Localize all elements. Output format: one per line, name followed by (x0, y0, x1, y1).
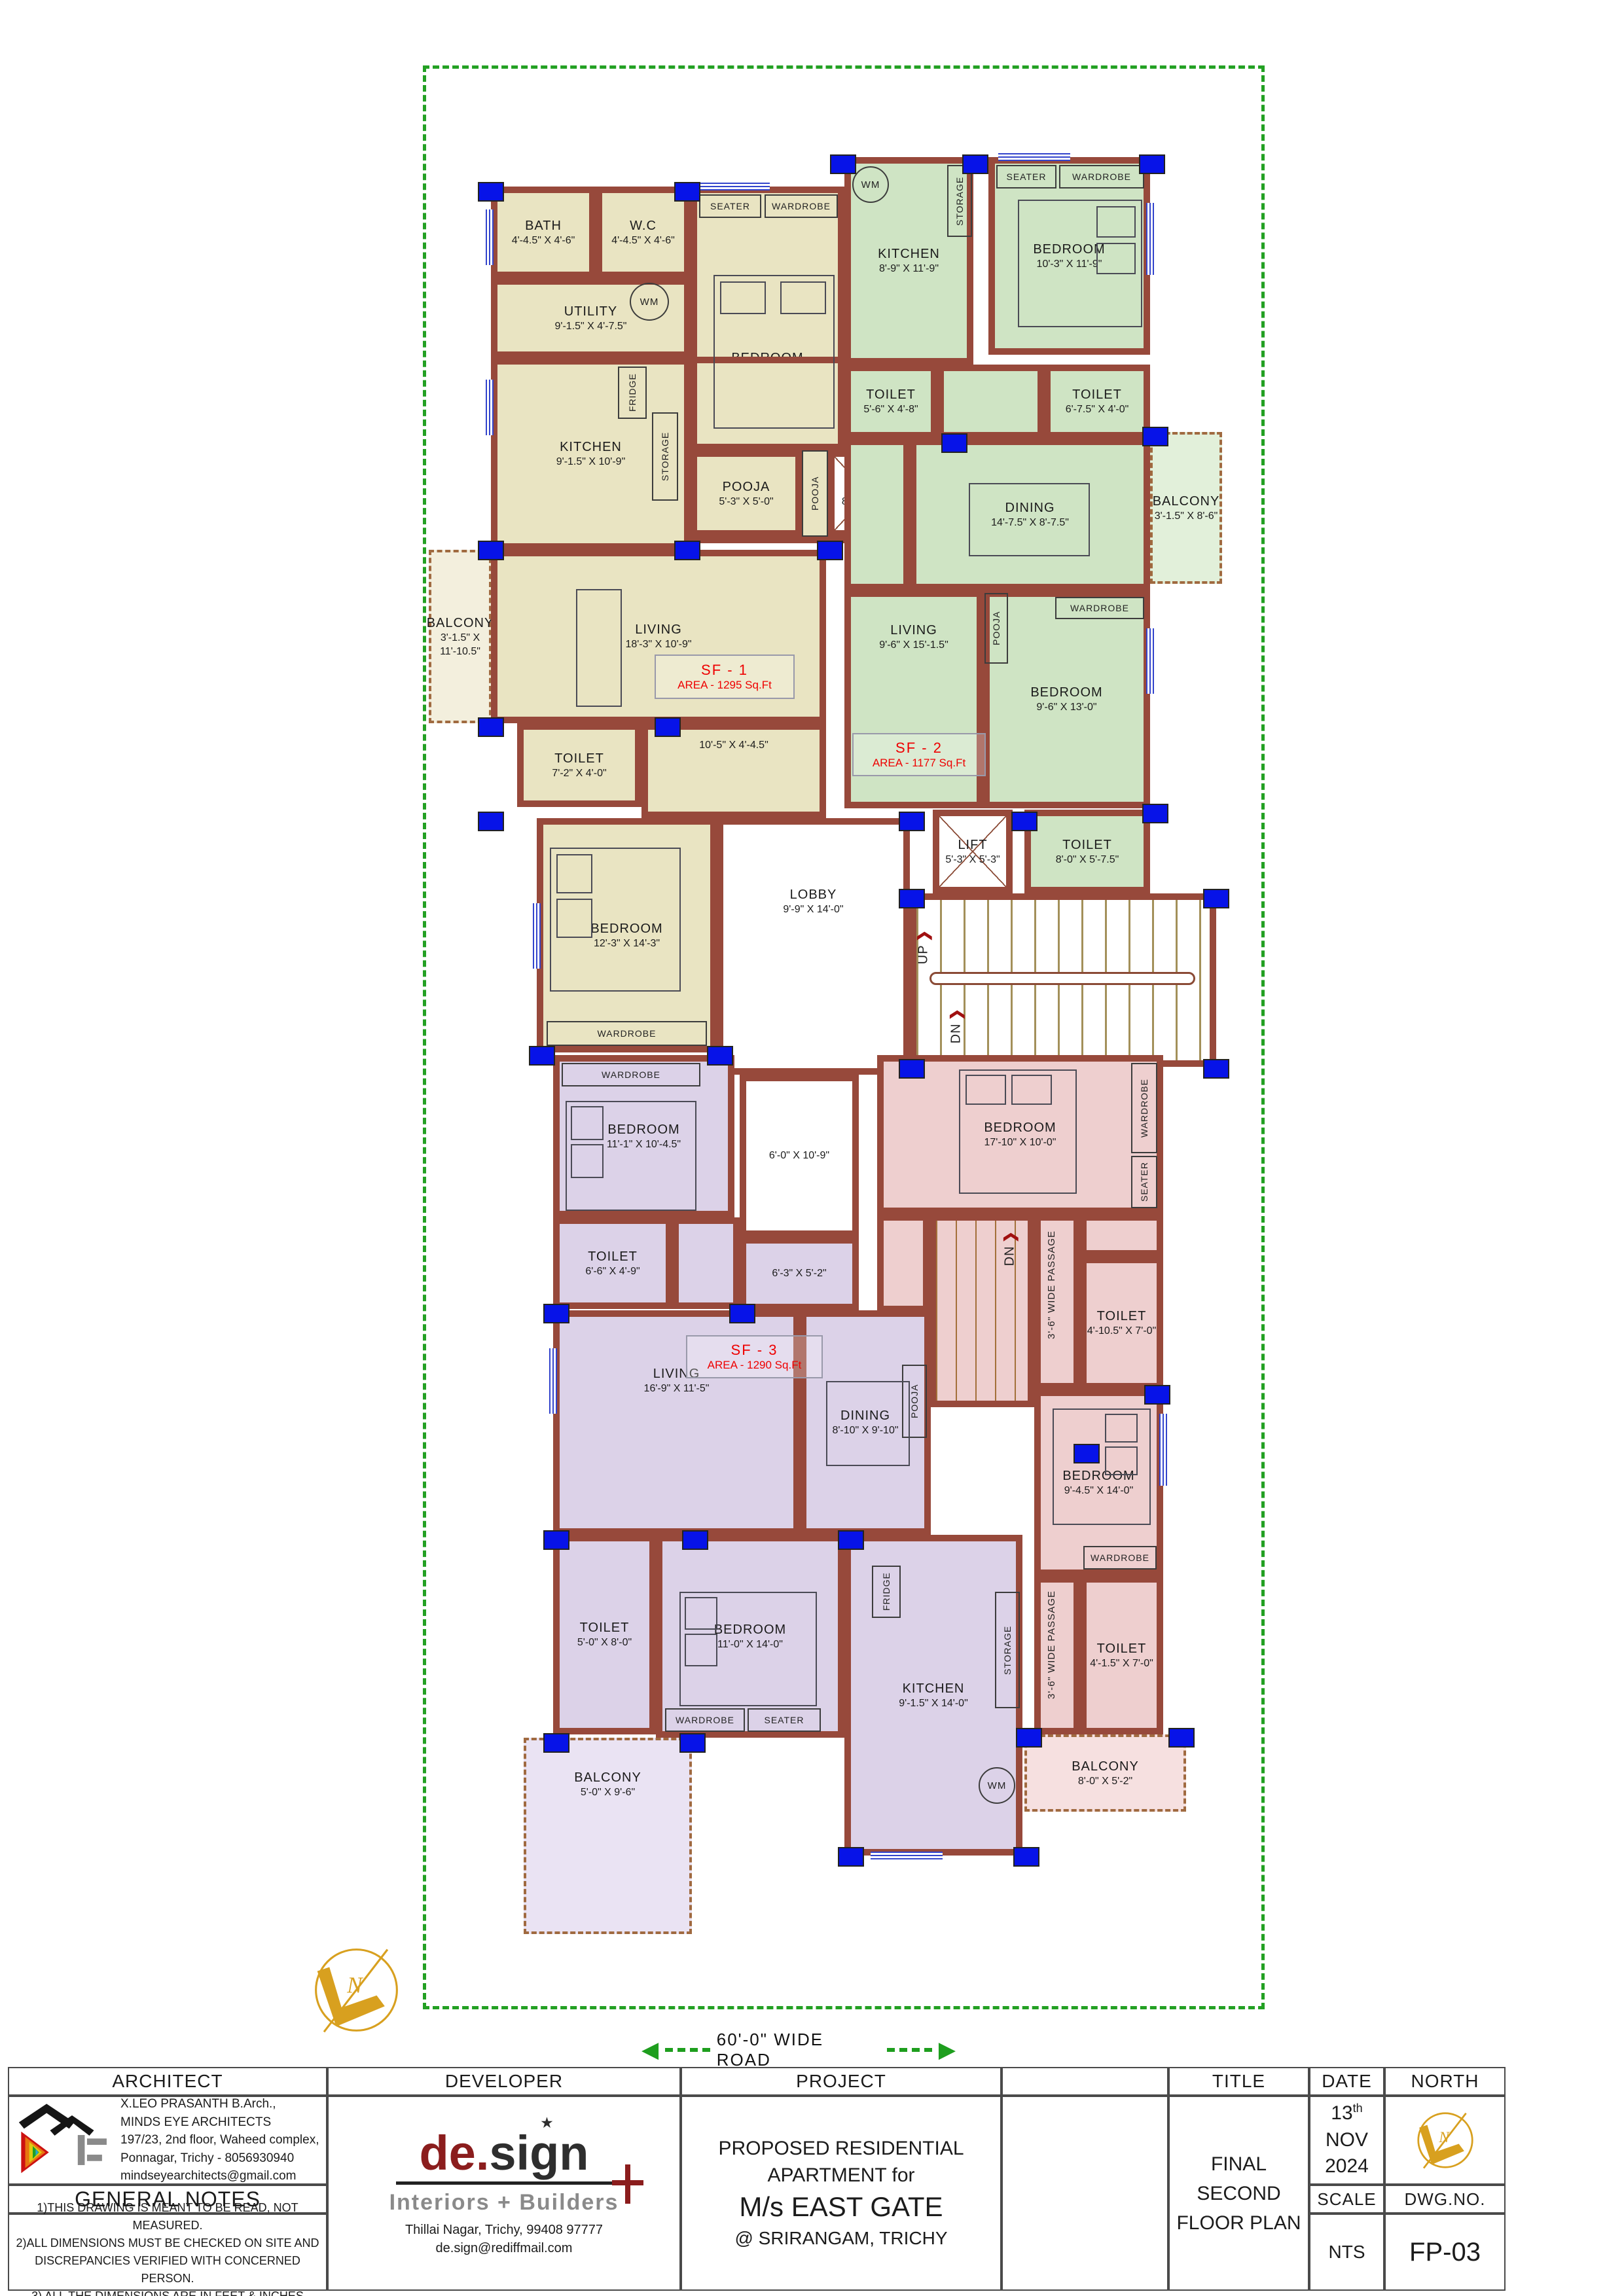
column-marker (941, 433, 967, 453)
column-marker (543, 1304, 569, 1323)
north-cell: N (1384, 2096, 1506, 2185)
storage-strip: STORAGE (652, 412, 678, 501)
window (1146, 203, 1154, 275)
circulation-sf4b (1080, 1214, 1163, 1257)
column-marker (1016, 1728, 1042, 1748)
bed (550, 848, 681, 992)
seater-strip: SEATER (699, 194, 761, 218)
seater-strip: SEATER (996, 165, 1056, 188)
column-marker (674, 541, 700, 560)
architect-info: X.LEO PRASANTH B.Arch., MINDS EYE ARCHIT… (8, 2096, 327, 2185)
column-marker (1139, 154, 1165, 174)
room-balcony-sf1: BALCONY 3'-1.5" X 11'-10.5" (429, 550, 492, 723)
stair-arrow-icon: ❯ (1001, 1230, 1019, 1243)
unit-label-sf3: SF - 3 AREA - 1290 Sq.Ft (686, 1335, 823, 1378)
circulation-sf3 (672, 1217, 740, 1309)
bed (713, 275, 835, 429)
road-label-group: ◀ 60'-0" WIDE ROAD ▶ (641, 2036, 956, 2064)
pooja-strip: POOJA (984, 593, 1008, 664)
room-toilet1-sf2: TOILET 5'-6" X 4'-8" (844, 365, 937, 439)
pooja-strip: POOJA (802, 450, 828, 537)
stairwell-sf4 (929, 1214, 1034, 1407)
passage1-sf4 (1034, 1214, 1080, 1390)
road-label: 60'-0" WIDE ROAD (717, 2030, 881, 2070)
column-marker (529, 1046, 555, 1066)
room-toilet3-sf2: TOILET 8'-0" X 5'-7.5" (1024, 810, 1150, 893)
seater-strip: SEATER (748, 1708, 821, 1732)
room-toilet2-sf2: TOILET 6'-7.5" X 4'-0" (1044, 365, 1150, 439)
dining-table (969, 483, 1090, 556)
column-marker (1203, 889, 1229, 908)
developer-address: Thillai Nagar, Trichy, 99408 97777 de.si… (405, 2221, 603, 2257)
passage2-sf4 (1034, 1576, 1080, 1734)
room-pooja-sf1: POOJA 5'-3" X 5'-0" (691, 450, 802, 537)
room-balcony-sf3: BALCONY 5'-0" X 9'-6" (524, 1738, 692, 1934)
developer-info: de.★sign Interiors + Builders Thillai Na… (327, 2096, 681, 2291)
room-toilet1-sf4: TOILET 4'-10.5" X 7'-0" (1080, 1257, 1163, 1390)
column-marker (1203, 1059, 1229, 1079)
date-value: 13th NOV 2024 (1309, 2096, 1384, 2185)
svg-text:N: N (346, 1973, 363, 1998)
wardrobe-strip: WARDROBE (547, 1021, 707, 1046)
washing-machine-icon: WM (630, 283, 669, 321)
road-dash (887, 2048, 932, 2052)
room-toilet1-sf3: TOILET 6'-6" X 4'-9" (553, 1217, 672, 1309)
road-dash (665, 2048, 710, 2052)
unit-label-sf1: SF - 1 AREA - 1295 Sq.Ft (655, 655, 795, 699)
passage-sf1: 10'-5" X 4'-4.5" (641, 723, 826, 818)
minds-eye-logo (13, 2101, 111, 2179)
column-marker (478, 717, 504, 737)
unit-label-sf2: SF - 2 AREA - 1177 Sq.Ft (852, 733, 986, 776)
column-marker (679, 1733, 706, 1753)
column-marker (899, 889, 925, 908)
room-lobby: LOBBY 9'-9" X 14'-0" (717, 818, 910, 1075)
stair-dn-label: DN❯ (1001, 1230, 1019, 1266)
star-icon: ★ (541, 2117, 552, 2130)
fridge-icon: FRIDGE (872, 1566, 901, 1618)
general-notes: 1)THIS DRAWING IS MEANT TO BE READ, NOT … (8, 2214, 327, 2291)
open-area-sf3: 6'-0" X 10'-9" (740, 1075, 859, 1237)
column-marker (962, 154, 988, 174)
bed (566, 1101, 696, 1211)
washing-machine-icon: WM (852, 166, 889, 203)
date-header: DATE (1309, 2067, 1384, 2096)
room-balcony-sf4: BALCONY 8'-0" X 5'-2" (1024, 1734, 1186, 1812)
wardrobe-strip: WARDROBE (1059, 165, 1144, 188)
developer-header: DEVELOPER (327, 2067, 681, 2096)
fridge-icon: FRIDGE (618, 367, 647, 419)
washing-machine-icon: WM (979, 1767, 1015, 1804)
window (533, 903, 541, 969)
column-marker (682, 1530, 708, 1550)
column-marker (1011, 812, 1038, 831)
column-marker (1074, 1444, 1100, 1463)
architect-address: X.LEO PRASANTH B.Arch., MINDS EYE ARCHIT… (120, 2095, 319, 2185)
column-marker (478, 812, 504, 831)
column-marker (830, 154, 856, 174)
window (1146, 628, 1154, 694)
column-marker (1168, 1728, 1195, 1748)
column-marker (1142, 804, 1168, 823)
architect-header: ARCHITECT (8, 2067, 327, 2096)
room-toilet2-sf3: TOILET 5'-0" X 8'-0" (553, 1535, 656, 1734)
room-lift: LIFT 5'-3" X 5'-3" (933, 810, 1013, 893)
storage-strip: STORAGE (947, 165, 972, 237)
north-compass-icon: N (302, 1936, 410, 2044)
project-info: PROPOSED RESIDENTIAL APARTMENT for M/s E… (681, 2096, 1001, 2291)
road-arrow-left-icon: ◀ (641, 2039, 659, 2061)
living-sf2-upper (844, 439, 910, 590)
dining-table (826, 1381, 910, 1466)
circulation-sf4 (877, 1214, 929, 1312)
design-logo: de.★sign Interiors + Builders Thillai Na… (389, 2129, 619, 2257)
circulation-sf2 (937, 365, 1044, 439)
spare-cell (1001, 2096, 1168, 2291)
bed (1018, 200, 1142, 327)
dwg-no-value: FP-03 (1384, 2214, 1506, 2291)
logo-underline (396, 2181, 612, 2185)
title-block: ARCHITECT X.LEO PRASANTH B.Arch., MINDS … (8, 2067, 1506, 2291)
stair-arrow-icon: ❯ (948, 1008, 965, 1020)
drawing-title: FINAL SECOND FLOOR PLAN (1168, 2096, 1309, 2291)
column-marker (899, 812, 925, 831)
bed (959, 1069, 1077, 1194)
bed (679, 1592, 817, 1706)
scale-value: NTS (1309, 2214, 1384, 2291)
window (698, 183, 770, 190)
wardrobe-strip: WARDROBE (1131, 1063, 1157, 1153)
window (1159, 1414, 1167, 1486)
column-marker (838, 1530, 864, 1550)
column-marker (817, 541, 843, 560)
wardrobe-strip: WARDROBE (765, 194, 838, 218)
window (549, 1348, 557, 1414)
svg-text:N: N (1438, 2129, 1450, 2146)
scale-header: SCALE (1309, 2185, 1384, 2214)
column-marker (543, 1733, 569, 1753)
room-toilet2-sf4: TOILET 4'-1.5" X 7'-0" (1080, 1576, 1163, 1734)
storage-strip: STORAGE (995, 1592, 1020, 1708)
column-marker (478, 541, 504, 560)
project-header: PROJECT (681, 2067, 1001, 2096)
stair-arrow-icon: ❯ (915, 929, 932, 942)
road-arrow-right-icon: ▶ (939, 2039, 956, 2061)
column-marker (655, 717, 681, 737)
spare-header-cell (1001, 2067, 1168, 2096)
floor-plan-sheet: BATH 4'-4.5" X 4'-6" W.C 4'-4.5" X 4'-6"… (0, 0, 1624, 2296)
dwg-no-header: DWG.NO. (1384, 2185, 1506, 2214)
title-header: TITLE (1168, 2067, 1309, 2096)
wardrobe-strip: WARDROBE (562, 1063, 700, 1086)
wardrobe-strip: WARDROBE (665, 1708, 745, 1732)
room-balcony-sf2: BALCONY 3'-1.5" X 8'-6" (1150, 432, 1222, 584)
seater-strip: SEATER (1131, 1156, 1157, 1208)
stair-up-label: UP❯ (915, 929, 932, 964)
column-marker (1013, 1847, 1039, 1867)
sofa (576, 589, 622, 707)
passage1-label: 3'-6" WIDE PASSAGE (1046, 1230, 1057, 1339)
stair-dn-label: DN❯ (948, 1008, 965, 1043)
column-marker (478, 182, 504, 202)
north-compass-icon: N (1409, 2104, 1481, 2176)
room-bath: BATH 4'-4.5" X 4'-6" (491, 187, 596, 278)
room-toilet-sf1: TOILET 7'-2" X 4'-0" (517, 723, 641, 807)
column-marker (543, 1530, 569, 1550)
passage2-label: 3'-6" WIDE PASSAGE (1046, 1590, 1057, 1699)
window (486, 209, 494, 265)
window (486, 380, 494, 435)
room-bedroom2-sf2: BEDROOM 9'-6" X 13'-0" (983, 590, 1150, 808)
passage-sf3: 6'-3" X 5'-2" (740, 1237, 859, 1310)
window (871, 1852, 943, 1859)
wardrobe-strip: WARDROBE (1083, 1546, 1157, 1570)
bed (1053, 1408, 1151, 1525)
column-marker (899, 1059, 925, 1079)
window (998, 153, 1070, 161)
column-marker (674, 182, 700, 202)
north-header: NORTH (1384, 2067, 1506, 2096)
column-marker (707, 1046, 733, 1066)
wardrobe-strip: WARDROBE (1055, 597, 1144, 619)
column-marker (729, 1304, 755, 1323)
stair-handrail (929, 972, 1195, 985)
column-marker (1144, 1385, 1170, 1405)
column-marker (1142, 427, 1168, 446)
column-marker (838, 1847, 864, 1867)
